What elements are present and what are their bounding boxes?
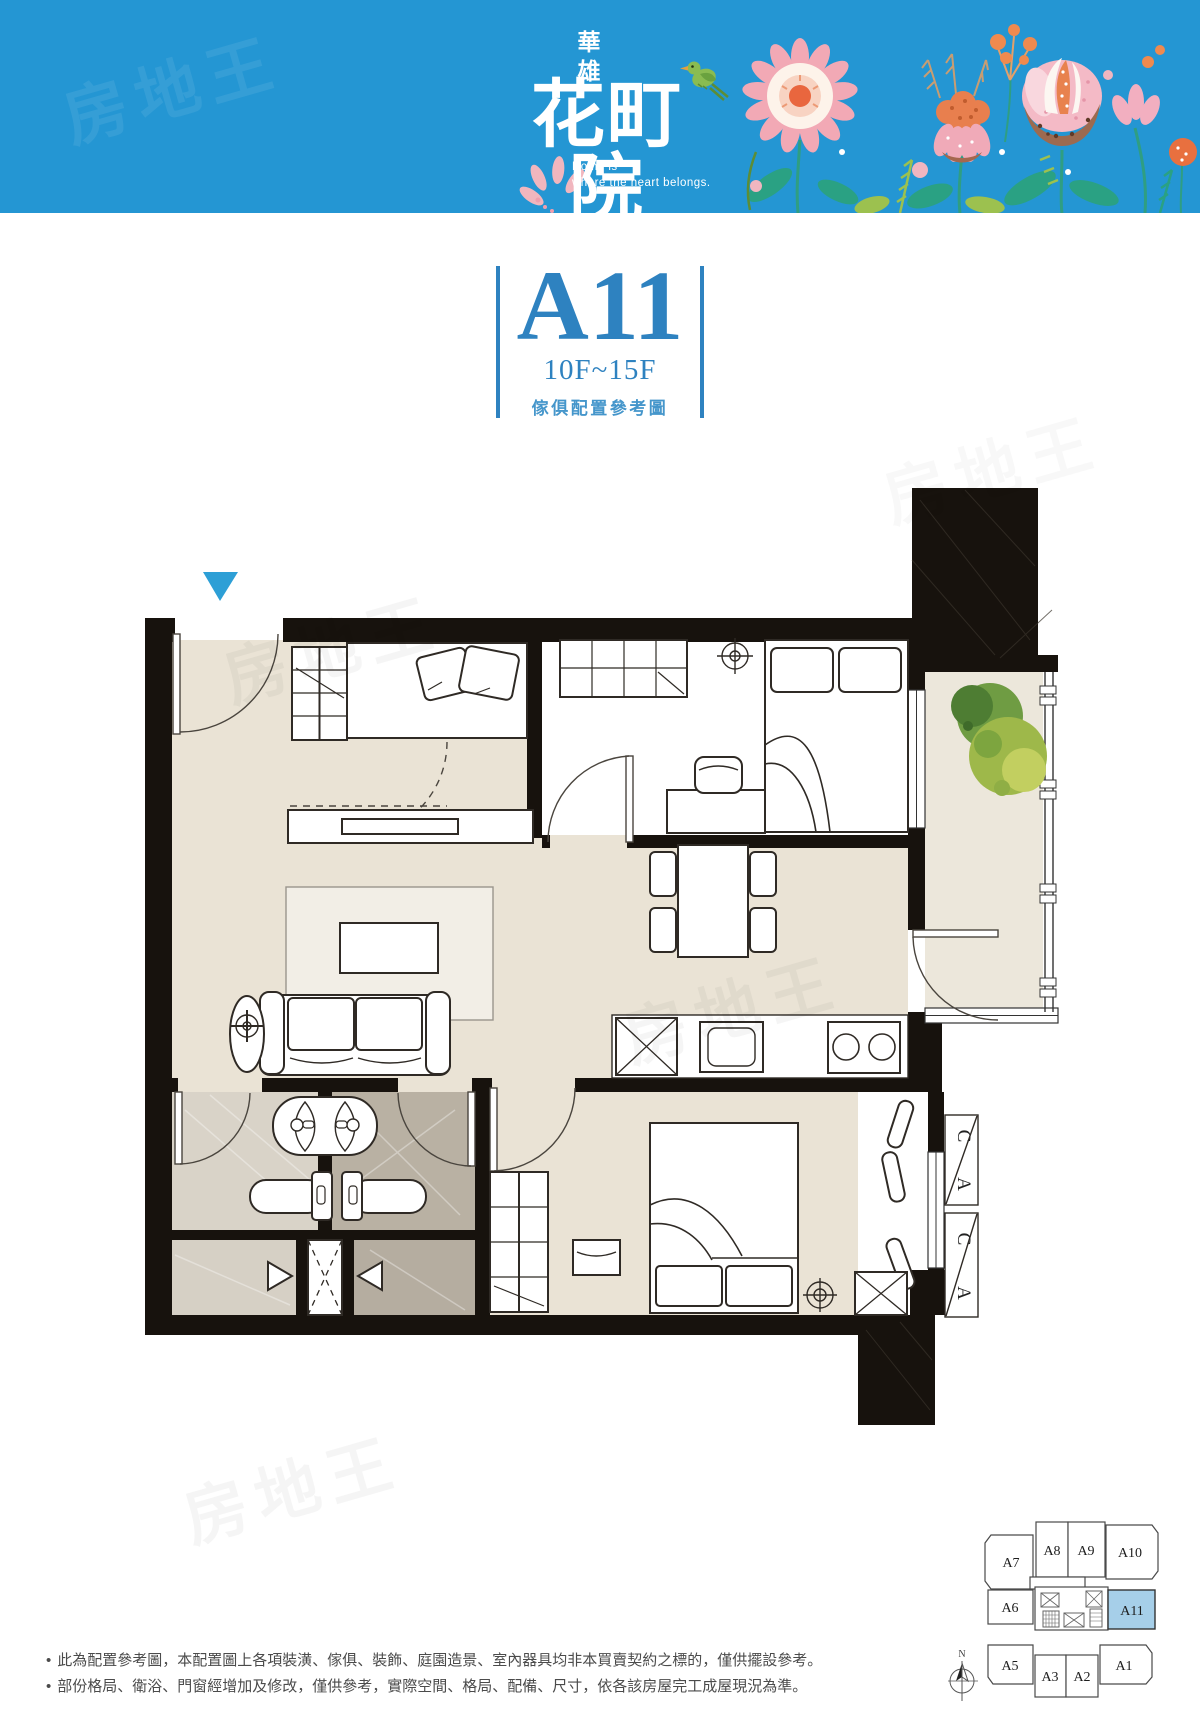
svg-text:A9: A9	[1077, 1544, 1094, 1559]
cooktop	[828, 1022, 900, 1073]
double-sink	[273, 1097, 377, 1155]
key-plan: A7 A8 A9 A10 A6 A11 A5 A3 A2 A1 N	[948, 1505, 1188, 1715]
ac-unit-1: C A	[945, 1115, 978, 1205]
svg-text:C: C	[953, 1233, 974, 1246]
ac-unit-2: C A	[945, 1213, 978, 1317]
fridge	[616, 1018, 677, 1075]
compass-icon: N	[948, 1649, 978, 1701]
svg-text:A6: A6	[1001, 1601, 1018, 1616]
floor-plan: C A C A	[0, 0, 1200, 1732]
svg-text:A5: A5	[1001, 1659, 1018, 1674]
svg-text:A: A	[953, 1177, 974, 1191]
study-wardrobe	[292, 647, 347, 740]
disclaimer: •此為配置參考圖，本配置圖上各項裝潢、傢俱、裝飾、庭園造景、室內器具均非本買賣契…	[46, 1648, 822, 1699]
ac-units: C A C A	[945, 1115, 978, 1317]
coffee-table	[340, 923, 438, 973]
svg-text:A: A	[953, 1286, 974, 1300]
bedroom2-wardrobe	[560, 640, 687, 697]
svg-text:A8: A8	[1043, 1544, 1060, 1559]
svg-text:A10: A10	[1118, 1546, 1142, 1561]
svg-text:N: N	[958, 1649, 965, 1660]
daybed	[347, 643, 527, 738]
shaft-box	[855, 1272, 907, 1315]
svg-text:A3: A3	[1041, 1670, 1058, 1685]
svg-text:A2: A2	[1073, 1670, 1090, 1685]
bullet-icon: •	[46, 1652, 51, 1669]
svg-text:C: C	[953, 1130, 974, 1143]
disclaimer-line-1: •此為配置參考圖，本配置圖上各項裝潢、傢俱、裝飾、庭園造景、室內器具均非本買賣契…	[46, 1648, 822, 1674]
sofa	[260, 992, 450, 1075]
floor-lamp	[230, 996, 264, 1072]
kitchen-counter	[612, 1015, 908, 1078]
entry-marker	[203, 572, 238, 601]
kitchen-sink	[700, 1022, 763, 1072]
page: 華雄 花町院 Home is where the heart belongs. …	[0, 0, 1200, 1732]
stool	[573, 1240, 620, 1275]
svg-text:A11: A11	[1120, 1604, 1144, 1619]
bed-bedroom2	[765, 640, 908, 832]
disclaimer-line-2: •部份格局、衛浴、門窗經增加及修改，僅供參考，實際空間、格局、配備、尺寸，依各該…	[46, 1674, 822, 1700]
tv-console	[288, 810, 533, 843]
master-wardrobe	[490, 1172, 548, 1312]
svg-text:A7: A7	[1002, 1556, 1019, 1571]
bullet-icon: •	[46, 1678, 51, 1695]
master-bed	[650, 1123, 798, 1313]
svg-text:A1: A1	[1115, 1659, 1132, 1674]
